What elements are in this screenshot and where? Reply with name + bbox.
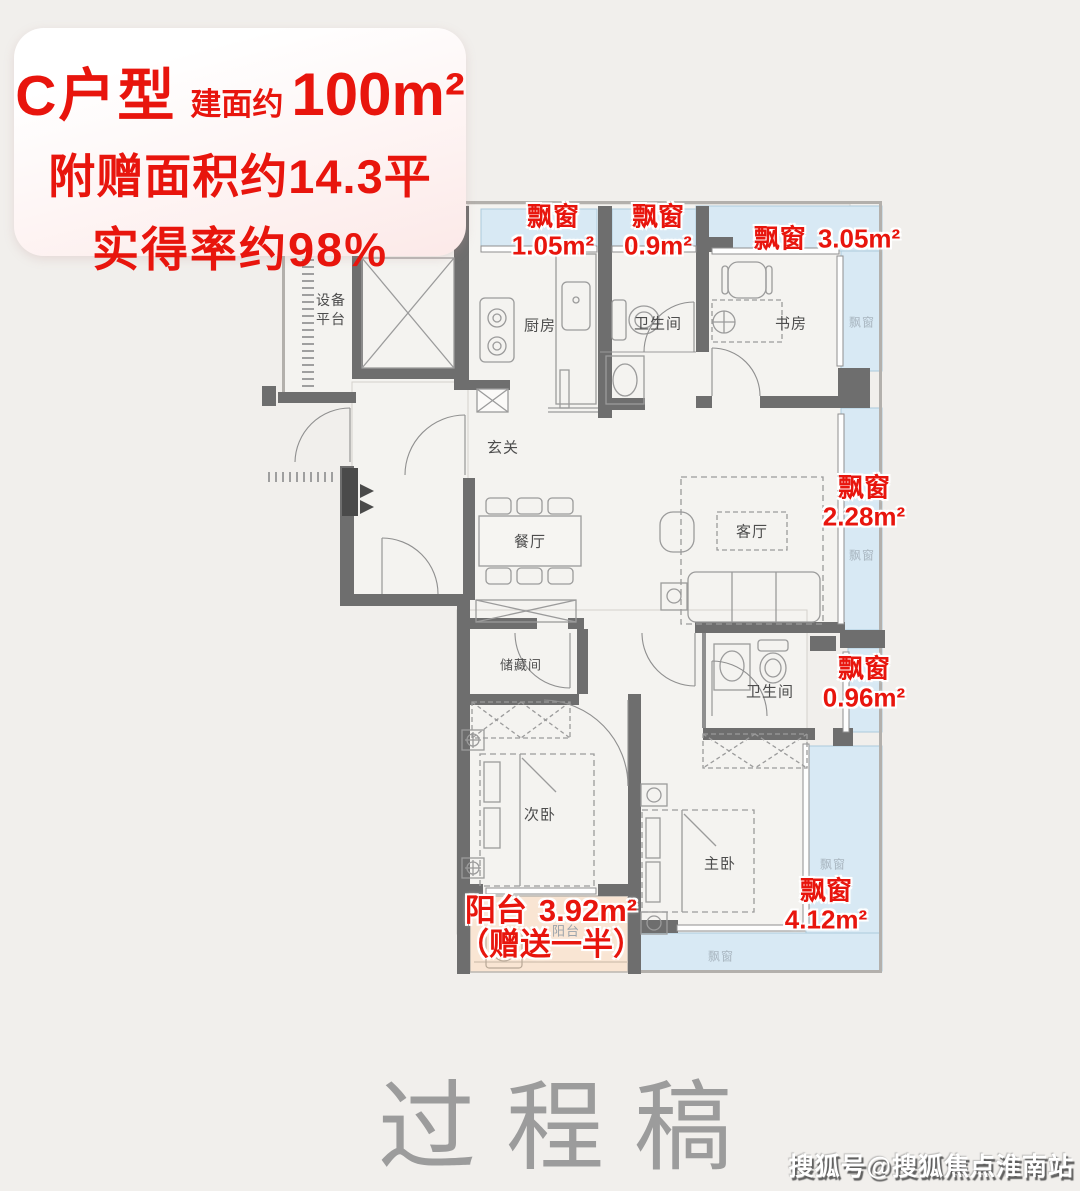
label-dining: 餐厅 bbox=[514, 531, 546, 552]
note-label: 飘窗 bbox=[512, 202, 594, 231]
note-value: 2.28m² bbox=[823, 502, 905, 531]
note-label: 飘窗 bbox=[785, 876, 867, 905]
bonus-area-line: 附赠面积约14.3平 bbox=[14, 138, 466, 207]
note-value: 4.12m² bbox=[785, 905, 867, 934]
note-bay-bath-top: 飘窗 0.9m² bbox=[624, 202, 692, 259]
floor-areas bbox=[283, 204, 850, 934]
note-value: 3.92m² bbox=[539, 893, 637, 928]
area-value: 100m² bbox=[291, 60, 464, 129]
title-card: C户型 建面约 100m² 附赠面积约14.3平 实得率约98% bbox=[14, 28, 466, 256]
note-value: 0.96m² bbox=[823, 683, 905, 712]
note-balcony: 阳台3.92m² （赠送一半） bbox=[458, 894, 644, 962]
note-value: 1.05m² bbox=[512, 231, 594, 260]
note-bay-bath-lower: 飘窗 0.96m² bbox=[823, 654, 905, 711]
bay-tag-bottom: 飘窗 bbox=[708, 948, 734, 965]
note-bay-kitchen: 飘窗 1.05m² bbox=[512, 202, 594, 259]
label-foyer: 玄关 bbox=[487, 437, 519, 458]
note-value: 3.05m² bbox=[818, 224, 900, 254]
label-study: 书房 bbox=[775, 313, 807, 334]
note-label: 飘窗 bbox=[624, 202, 692, 231]
note-bay-living: 飘窗 2.28m² bbox=[823, 473, 905, 530]
note-bay-master: 飘窗 4.12m² bbox=[785, 876, 867, 933]
bay-tag-master: 飘窗 bbox=[820, 856, 846, 873]
note-bonus: （赠送一半） bbox=[458, 928, 644, 962]
area-prefix: 建面约 bbox=[190, 79, 283, 124]
label-storage: 储藏间 bbox=[500, 655, 542, 674]
label-bathroom-top: 卫生间 bbox=[634, 313, 682, 334]
label-living: 客厅 bbox=[736, 521, 768, 542]
note-bay-study: 飘窗3.05m² bbox=[754, 225, 900, 254]
draft-watermark: 过程稿 bbox=[378, 1048, 762, 1190]
bay-tag-living: 飘窗 bbox=[849, 547, 875, 564]
label-kitchen: 厨房 bbox=[524, 315, 556, 336]
label-equipment-platform: 设备平台 bbox=[312, 291, 350, 329]
note-label: 飘窗 bbox=[823, 473, 905, 502]
note-label: 飘窗 bbox=[823, 654, 905, 683]
floorplan-page: 设备平台 厨房 卫生间 书房 玄关 餐厅 客厅 储藏间 卫生间 次卧 主卧 阳台… bbox=[0, 0, 1080, 1191]
note-label: 飘窗 bbox=[754, 224, 806, 254]
note-value: 0.9m² bbox=[624, 231, 692, 260]
label-bedroom-second: 次卧 bbox=[524, 804, 556, 825]
net-rate-line: 实得率约98% bbox=[14, 211, 466, 280]
credit-watermark: 搜狐号@搜狐焦点淮南站 bbox=[789, 1147, 1074, 1183]
label-bedroom-master: 主卧 bbox=[704, 853, 736, 874]
label-bathroom-lower: 卫生间 bbox=[746, 681, 794, 702]
bay-tag-study: 飘窗 bbox=[849, 314, 875, 331]
title-line-1: C户型 建面约 100m² bbox=[14, 50, 466, 132]
note-label: 阳台 bbox=[465, 893, 527, 928]
unit-type: C户型 bbox=[15, 50, 176, 132]
